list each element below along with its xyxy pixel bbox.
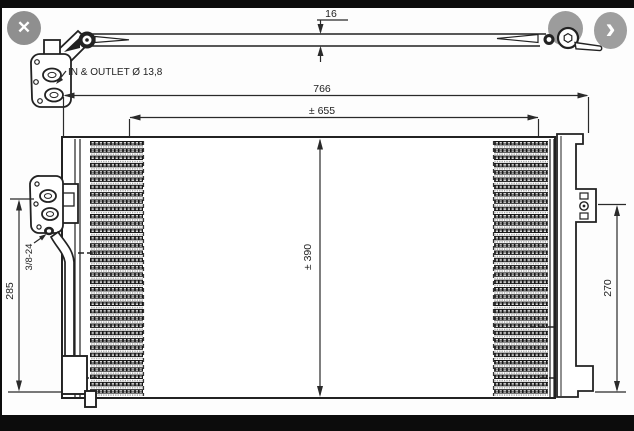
- top-letterbox-bar: [0, 0, 634, 8]
- top-view: [31, 28, 602, 107]
- in-outlet-label: IN & OUTLET Ø 13,8: [68, 67, 163, 78]
- dim-core-height: ± 390: [302, 244, 314, 270]
- dim-overall-width: 766: [313, 83, 331, 95]
- close-button[interactable]: ✕: [7, 11, 41, 45]
- bottom-letterbox-bar: [0, 415, 634, 431]
- dimension-labels: 16 766 ± 655 ± 390 285 270 3/8-24 IN & O…: [4, 8, 614, 300]
- dim-tube-depth: 16: [325, 8, 337, 20]
- next-image-button[interactable]: ›: [594, 12, 627, 49]
- front-view: [30, 134, 596, 407]
- left-letterbox-bar: [0, 0, 2, 431]
- dim-left-height: 285: [4, 282, 16, 300]
- previous-image-button[interactable]: [548, 11, 583, 46]
- image-viewer: 16 766 ± 655 ± 390 285 270 3/8-24 IN & O…: [0, 0, 634, 431]
- dim-core-width: ± 655: [309, 105, 335, 117]
- dim-bracket-height: 270: [602, 279, 614, 297]
- dimension-lines: [8, 20, 626, 397]
- technical-drawing: 16 766 ± 655 ± 390 285 270 3/8-24 IN & O…: [0, 0, 634, 431]
- thread-label: 3/8-24: [24, 244, 35, 271]
- close-icon: ✕: [17, 18, 31, 38]
